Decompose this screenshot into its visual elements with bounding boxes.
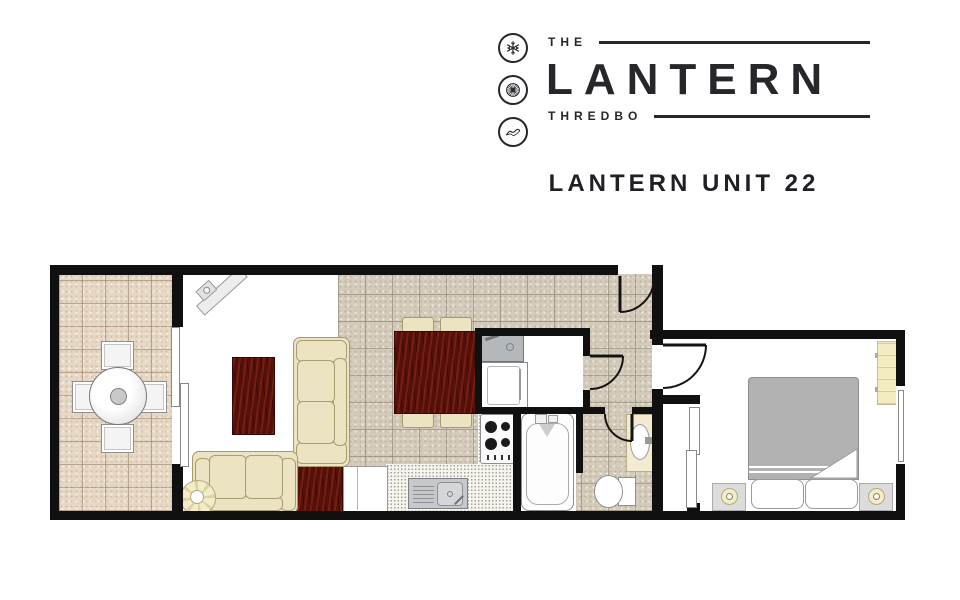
wall <box>652 395 700 404</box>
wall <box>583 407 605 414</box>
wall <box>50 265 59 520</box>
floor-plan-page: { "header": { "logo": { "word_top": "THE… <box>0 0 960 600</box>
wall <box>172 275 183 327</box>
sheet-line <box>749 471 856 473</box>
burner-icon <box>485 438 497 450</box>
lamp-center <box>873 493 880 500</box>
kitchen-cabinet <box>343 466 388 513</box>
wall <box>583 390 590 407</box>
lamp-icon <box>721 488 738 505</box>
wall <box>513 407 521 511</box>
logo-icon-column <box>498 33 530 159</box>
stove-knob <box>508 455 510 460</box>
wall <box>650 330 905 339</box>
nightstand-right <box>859 483 893 511</box>
pillow <box>805 479 858 509</box>
lamp-center <box>726 493 733 500</box>
wall <box>172 464 183 511</box>
nightstand-left <box>712 483 746 511</box>
brand-header: THE LANTERN THREDBO <box>498 26 870 159</box>
sofa-cushion <box>297 401 335 444</box>
cooktop <box>480 414 516 464</box>
shower-fixture <box>548 415 558 423</box>
hinge-icon <box>875 387 878 392</box>
wall <box>632 407 663 414</box>
burner-icon <box>501 438 510 447</box>
lamp-icon <box>868 488 885 505</box>
dining-table <box>394 331 481 414</box>
logo-rule-bottom <box>654 115 870 118</box>
round-side-table-hub <box>190 490 204 504</box>
wall <box>475 328 590 336</box>
wall <box>475 328 482 414</box>
outdoor-chair-north <box>101 341 134 370</box>
burner-icon <box>501 422 510 431</box>
unit-title: LANTERN UNIT 22 <box>498 170 870 198</box>
coffee-table <box>232 357 275 435</box>
logo-rule-top <box>599 41 870 44</box>
wall <box>896 463 905 511</box>
logo-word-thredbo: THREDBO <box>548 109 642 123</box>
stove-knob <box>487 455 489 460</box>
wall <box>896 330 905 387</box>
fridge <box>481 362 528 409</box>
fridge-handle <box>519 369 521 400</box>
outdoor-chair-south <box>101 424 134 453</box>
sheet-line <box>749 466 856 468</box>
fridge-door <box>487 366 520 405</box>
logo-word-lantern: LANTERN <box>546 58 870 102</box>
cabinet-divider <box>357 467 358 510</box>
pillow <box>751 479 804 509</box>
wall <box>576 414 583 473</box>
side-table <box>296 465 343 513</box>
sofa-cushion <box>297 360 335 403</box>
drain-icon <box>447 491 453 497</box>
bathtub <box>521 413 574 511</box>
wall <box>475 407 590 414</box>
outdoor-table-hub <box>110 388 127 405</box>
sink-bowl <box>437 482 463 506</box>
tv-mount <box>195 280 217 302</box>
stove-knob <box>494 455 496 460</box>
faucet-icon <box>645 437 652 444</box>
vanity <box>626 414 654 472</box>
sofa-backrest <box>333 358 347 446</box>
drain-icon <box>506 343 514 351</box>
double-bed <box>748 377 859 480</box>
bedroom-door-arc <box>663 345 706 388</box>
sliding-wardrobe-door-panel <box>686 450 697 508</box>
bedroom-window <box>898 390 904 462</box>
sofa-three-seat <box>293 337 350 467</box>
wall <box>583 328 590 356</box>
sofa-cushion <box>245 455 283 499</box>
shower-fixture <box>535 414 547 424</box>
sliding-balcony-door-panel <box>171 327 180 407</box>
snowflake-icon <box>498 33 528 63</box>
wagon-wheel-icon <box>498 75 528 105</box>
tv-speaker-dot <box>202 285 212 295</box>
wall <box>50 265 618 275</box>
lantern-logo: THE LANTERN THREDBO <box>498 26 870 159</box>
sliding-balcony-door-panel <box>180 383 189 467</box>
burner-icon <box>485 421 497 433</box>
sliding-wardrobe-door-panel <box>689 407 700 455</box>
wall <box>50 511 905 520</box>
logo-wordmark: THE LANTERN THREDBO <box>548 26 870 159</box>
mountains-icon <box>498 117 528 147</box>
stove-knob <box>501 455 503 460</box>
sink-drainer <box>413 483 434 503</box>
logo-word-the: THE <box>548 35 587 49</box>
toilet <box>594 475 623 508</box>
kitchen-sink <box>408 478 468 509</box>
hinge-icon <box>875 353 878 358</box>
